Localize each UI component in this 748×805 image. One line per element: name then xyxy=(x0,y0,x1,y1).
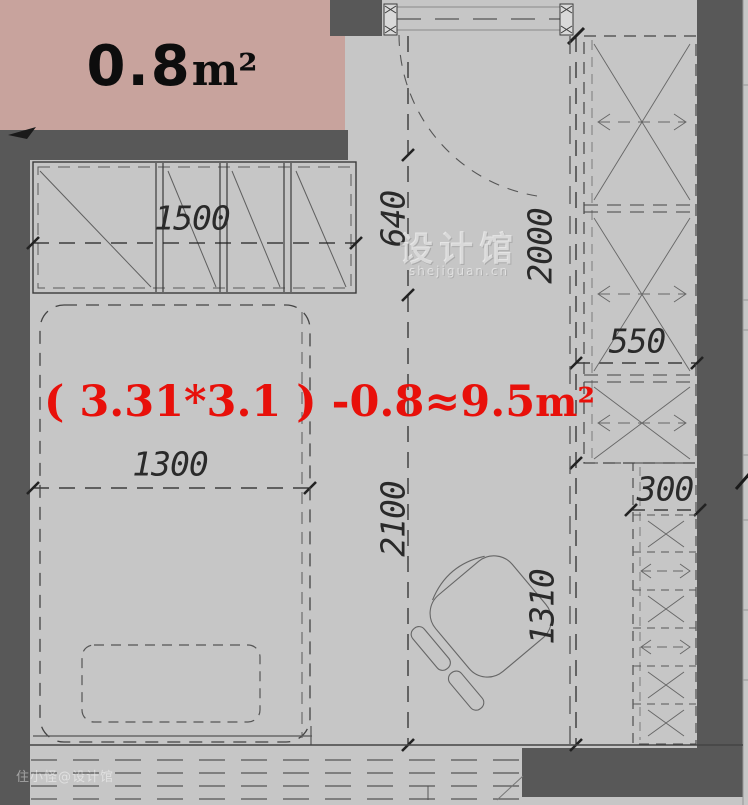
watermark-center-subtitle: shejiguan.cn xyxy=(409,264,509,278)
wardrobe-hatch xyxy=(594,44,690,459)
watermark-corner: 住小怪@设计馆 xyxy=(16,766,114,785)
balcony-area-value: 0.8 xyxy=(86,34,191,99)
door-jamb-left xyxy=(384,4,397,35)
bed-duvet xyxy=(82,645,260,722)
formula-unit: m² xyxy=(535,379,595,426)
door xyxy=(384,4,573,196)
dim-closet-width: 1500 xyxy=(154,202,229,235)
dim-cabinet-width: 550 xyxy=(609,325,666,358)
dim-bed-width: 1300 xyxy=(132,448,207,481)
wardrobe-column xyxy=(584,36,696,463)
door-jamb-right xyxy=(560,4,573,35)
balcony-area-label: 0.8m² xyxy=(86,39,257,95)
balcony-area-unit: m² xyxy=(192,45,258,96)
dim-lower-run: 1310 xyxy=(526,569,559,644)
dim-wardrobe-run: 2000 xyxy=(524,208,557,283)
dim-room-length: 2100 xyxy=(377,481,410,556)
floor-plan: 0.8m² ( 3.31*3.1 ) -0.8≈9.5m² 1500 1300 … xyxy=(0,0,748,805)
dim-shelf-width: 300 xyxy=(637,473,694,506)
area-formula: ( 3.31*3.1 ) -0.8≈9.5m² xyxy=(44,381,595,424)
bed xyxy=(33,305,312,745)
formula-text: ( 3.31*3.1 ) -0.8≈9.5 xyxy=(44,377,535,427)
